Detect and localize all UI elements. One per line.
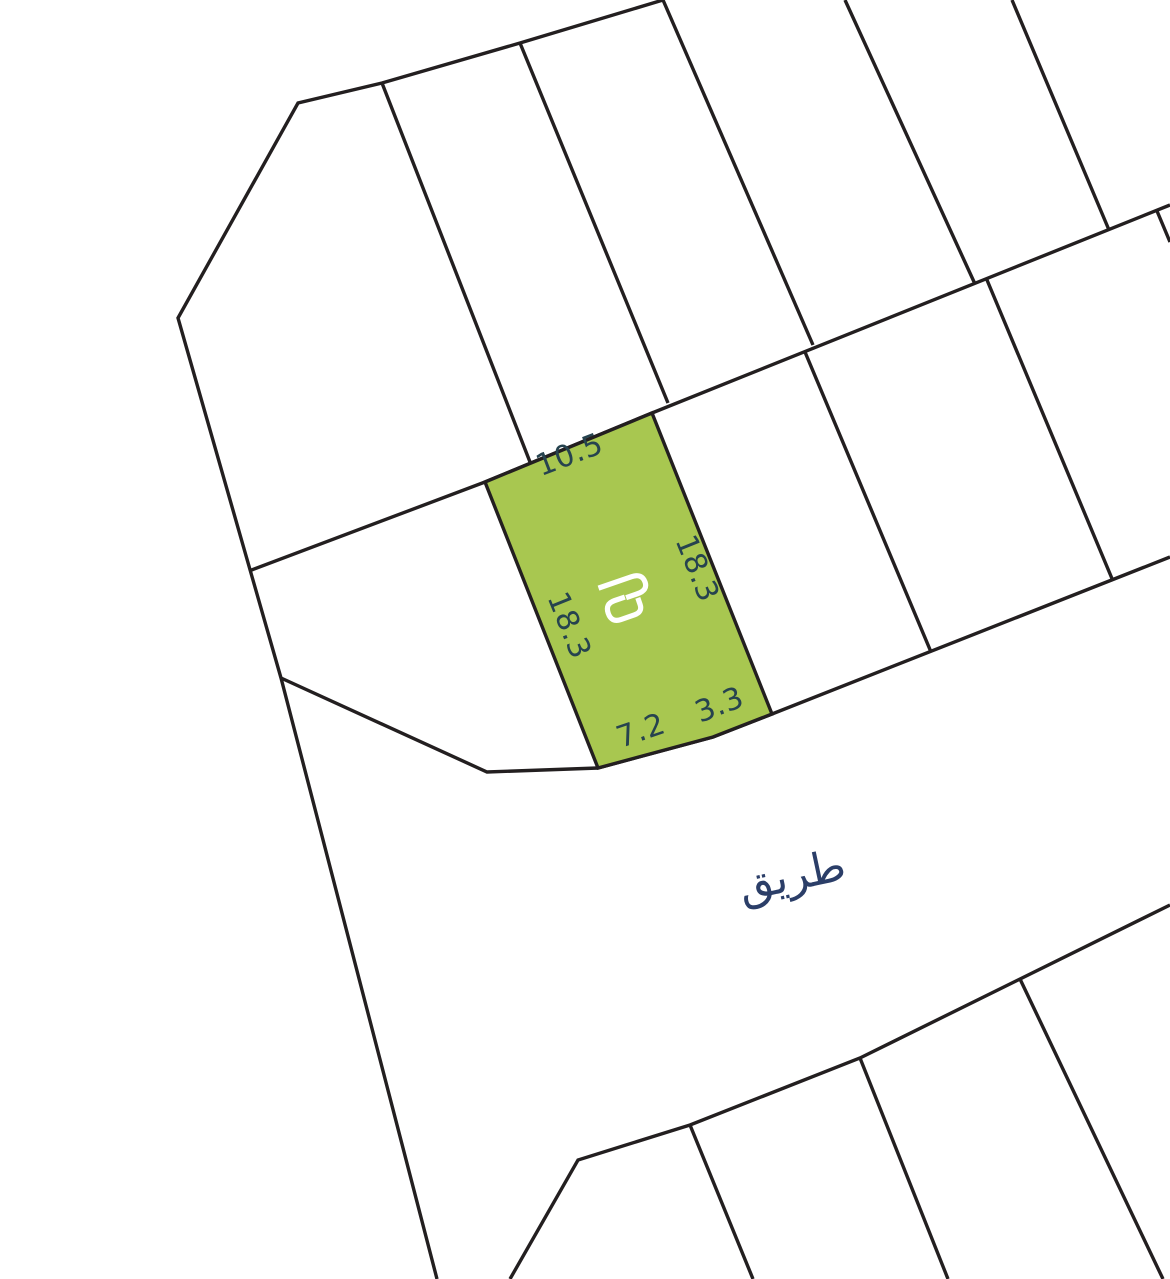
lower-row-divider-3 [1020,979,1163,1279]
middle-row-divider-4 [1157,211,1170,242]
lower-row-divider-2 [860,1058,948,1279]
upper-row-divider-5 [1012,0,1109,230]
middle-row-divider-3 [987,280,1113,581]
road-lower-boundary [510,905,1170,1279]
lower-row-divider-1 [690,1125,753,1279]
upper-row-divider-2 [520,43,668,403]
upper-row-divider-1 [382,83,530,462]
road-name-label: طريق [734,840,850,912]
cadastral-map-viewport: 10.5 18.3 18.3 7.2 3.3 طريق [0,0,1170,1279]
middle-row-divider-2 [805,352,931,652]
upper-row-divider-3 [663,0,813,345]
upper-row-divider-4 [845,0,975,284]
map-canvas[interactable]: 10.5 18.3 18.3 7.2 3.3 طريق [0,0,1170,1279]
